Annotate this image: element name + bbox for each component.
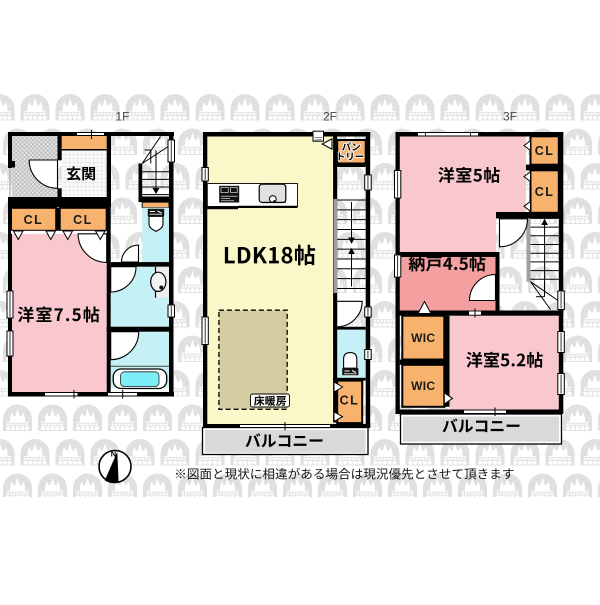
svg-text:WIC: WIC (411, 331, 435, 345)
svg-text:CL: CL (535, 185, 555, 199)
svg-text:2F: 2F (323, 110, 337, 124)
svg-text:3F: 3F (503, 110, 517, 124)
svg-text:CL: CL (535, 144, 555, 158)
svg-text:CL: CL (73, 213, 93, 227)
svg-text:WIC: WIC (411, 379, 435, 393)
svg-text:1F: 1F (115, 110, 129, 124)
svg-text:N: N (111, 450, 116, 459)
svg-text:CL: CL (340, 394, 360, 408)
svg-text:CL: CL (24, 213, 44, 227)
